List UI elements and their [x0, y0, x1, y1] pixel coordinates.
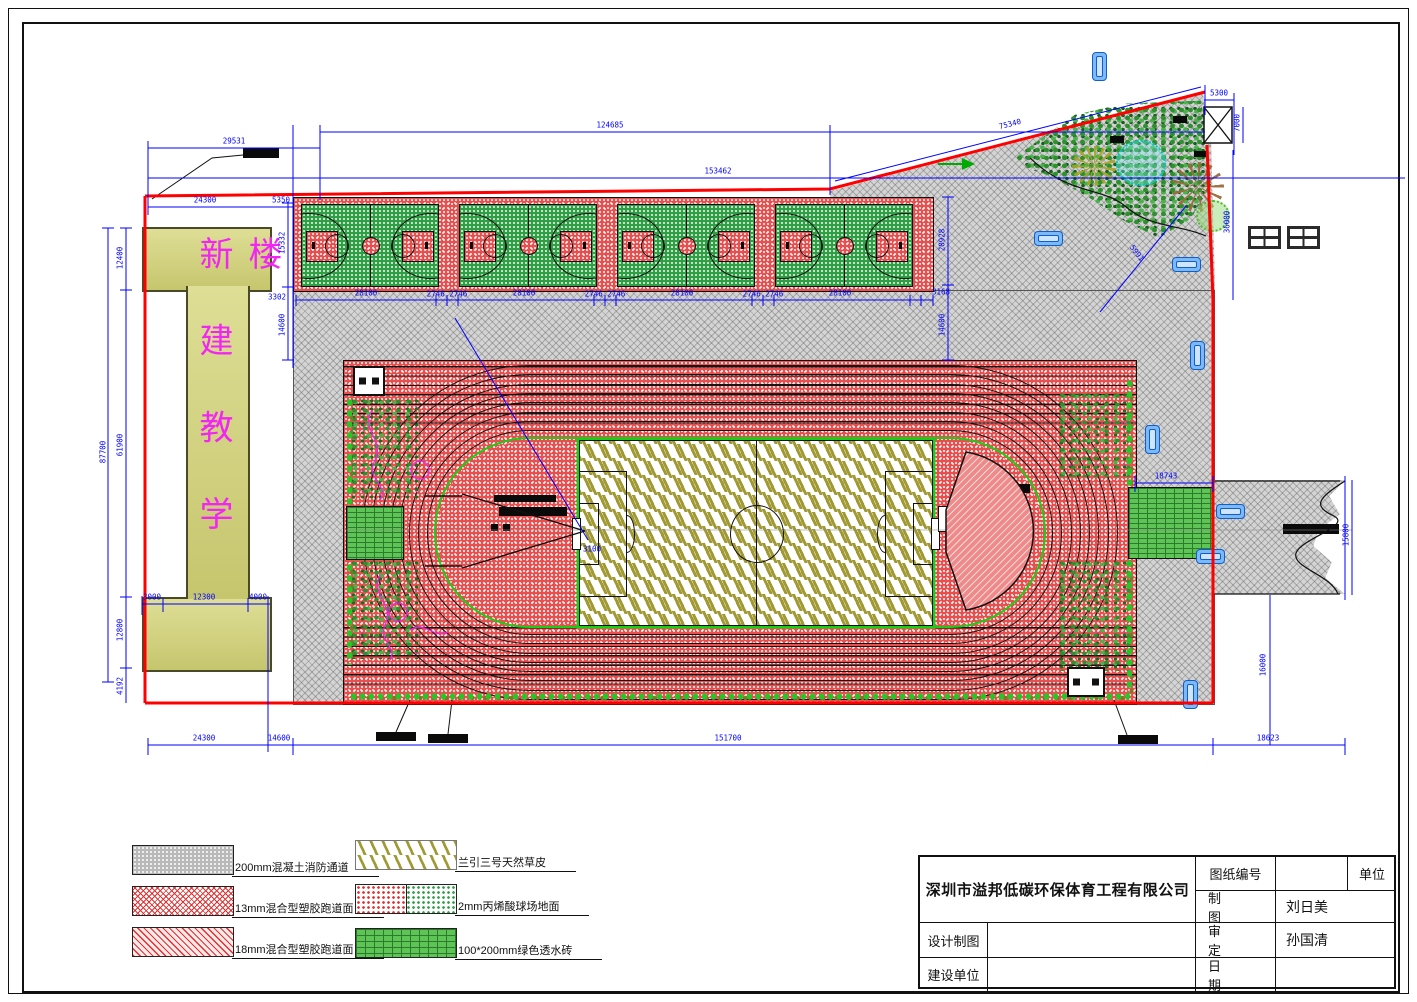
drawing-no-value [1275, 857, 1347, 890]
company-name: 深圳市溢邦低碳环保体育工程有限公司 [920, 857, 1195, 922]
legend-label: 2mm丙烯酸球场地面 [455, 898, 589, 916]
legend-swatch [132, 845, 234, 875]
legend-item: 2mm丙烯酸球场地面 [355, 882, 785, 916]
legend-item: 100*200mm绿色透水砖 [355, 926, 785, 960]
legend: 200mm混凝土消防通道13mm混合型塑胶跑道面18mm混合型塑胶跑道面兰引三号… [0, 0, 1417, 1002]
legend-swatch [355, 928, 457, 958]
builder-label: 建设单位 [920, 957, 987, 991]
legend-swatch [132, 927, 234, 957]
legend-label: 兰引三号天然草皮 [455, 854, 576, 872]
legend-swatch [355, 840, 457, 870]
title-block: 深圳市溢邦低碳环保体育工程有限公司 设计制图 建设单位 图纸编号 制图 审定 日… [918, 855, 1396, 989]
legend-swatch [355, 884, 457, 914]
date-value [1275, 957, 1396, 991]
unit-label: 单位 [1347, 857, 1396, 890]
design-draft-label: 设计制图 [920, 922, 987, 957]
drafter-label: 制图 [1195, 890, 1275, 922]
drawing-no-label: 图纸编号 [1195, 857, 1275, 890]
legend-swatch [132, 886, 234, 916]
legend-label: 100*200mm绿色透水砖 [455, 942, 602, 960]
builder-value [987, 957, 1195, 991]
date-label: 日期 [1195, 957, 1275, 991]
legend-item: 兰引三号天然草皮 [355, 838, 785, 872]
site-plan-drawing: 新建教学楼 [0, 0, 1417, 1002]
approver-value: 孙国清 [1275, 922, 1396, 957]
approver-label: 审定 [1195, 922, 1275, 957]
design-draft-value [987, 922, 1195, 957]
drafter-value: 刘日美 [1275, 890, 1396, 922]
